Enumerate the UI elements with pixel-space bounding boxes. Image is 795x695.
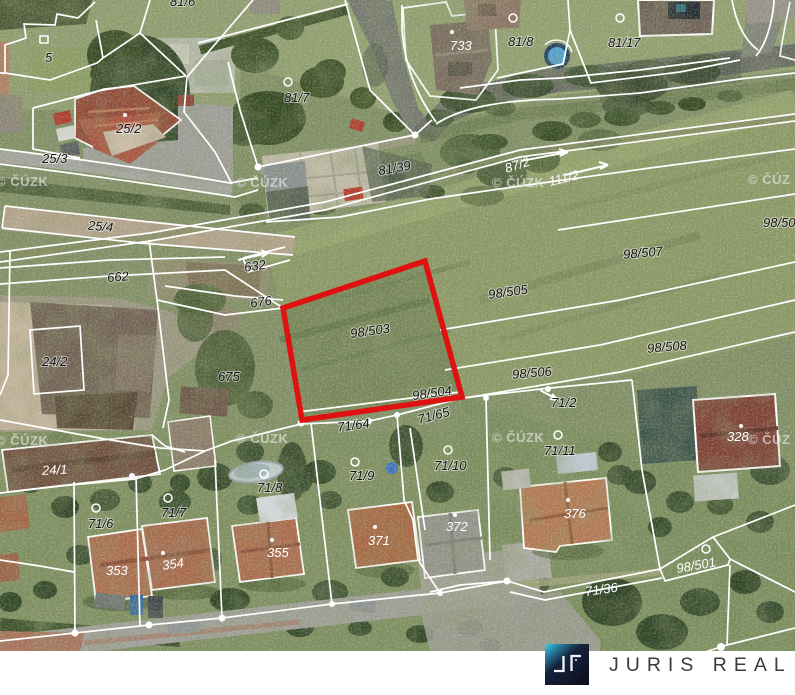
svg-text:81/17: 81/17 (608, 35, 641, 50)
svg-text:355: 355 (267, 545, 289, 560)
svg-text:© ČÚZK: © ČÚZK (492, 175, 544, 190)
svg-text:© ČÚZK: © ČÚZK (236, 175, 288, 190)
svg-text:354: 354 (161, 555, 185, 573)
svg-text:98/50: 98/50 (763, 215, 795, 230)
svg-text:71/10: 71/10 (434, 458, 467, 473)
svg-text:353: 353 (106, 563, 128, 578)
svg-text:71/6: 71/6 (88, 516, 114, 531)
svg-text:676: 676 (249, 293, 273, 311)
svg-text:632: 632 (243, 257, 267, 275)
svg-text:71/11: 71/11 (544, 443, 576, 458)
svg-text:376: 376 (564, 506, 586, 521)
svg-text:25/4: 25/4 (86, 218, 114, 235)
svg-text:675: 675 (218, 369, 240, 384)
svg-text:© ČÚZ: © ČÚZ (748, 432, 790, 447)
svg-text:371: 371 (368, 533, 390, 548)
svg-text:81/6: 81/6 (170, 0, 196, 9)
svg-text:71/8: 71/8 (257, 480, 283, 495)
svg-text:71/9: 71/9 (349, 468, 374, 483)
svg-text:© ČÚZK: © ČÚZK (0, 433, 48, 448)
svg-text:662: 662 (106, 268, 130, 285)
svg-text:24/2: 24/2 (41, 354, 68, 369)
svg-text:25/3: 25/3 (41, 151, 68, 166)
svg-text:71/2: 71/2 (551, 395, 577, 410)
svg-text:© ČÚZK: © ČÚZK (236, 431, 288, 446)
svg-text:© ČÚZK: © ČÚZK (492, 430, 544, 445)
svg-text:24/1: 24/1 (41, 462, 68, 478)
svg-text:25/2: 25/2 (115, 121, 142, 136)
svg-text:71/7: 71/7 (161, 505, 187, 520)
svg-text:328: 328 (727, 429, 749, 444)
svg-text:81/7: 81/7 (284, 90, 310, 105)
svg-text:© ČÚZK: © ČÚZK (0, 174, 48, 189)
svg-text:JURIS REAL: JURIS REAL (609, 654, 792, 676)
svg-text:81/8: 81/8 (508, 34, 534, 49)
svg-text:© ČÚZ: © ČÚZ (748, 172, 790, 187)
svg-text:5: 5 (45, 50, 53, 65)
svg-text:372: 372 (446, 519, 468, 534)
svg-text:733: 733 (450, 38, 472, 53)
